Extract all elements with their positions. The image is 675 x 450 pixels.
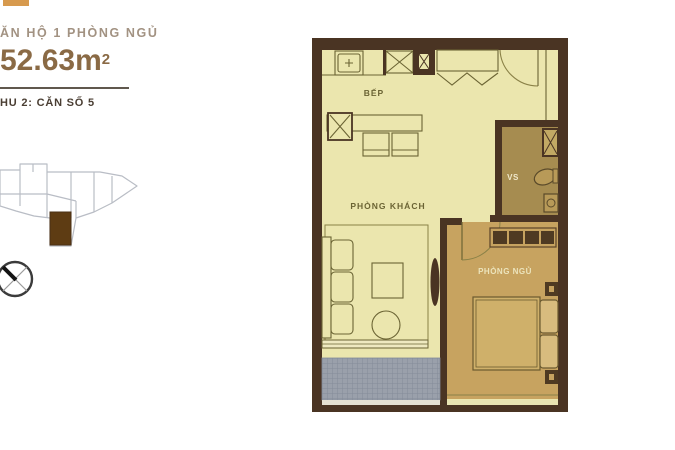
bed-pillow-2 [540, 335, 558, 368]
bar-stool-1 [363, 133, 389, 156]
area-sup: 2 [102, 51, 110, 68]
keyplan-thumbnail [0, 156, 142, 256]
sofa-cushion-2 [331, 272, 353, 302]
living-label: PHÒNG KHÁCH [350, 200, 425, 211]
divider-line [0, 87, 129, 89]
tv-unit [431, 258, 440, 306]
toilet-tank [553, 169, 558, 183]
wardrobe-door-2 [509, 231, 523, 244]
sofa-cushion-3 [331, 304, 353, 334]
bedroom-label: PHÒNG NGỦ [478, 267, 532, 276]
bedroom-window-strip [447, 400, 558, 405]
highlighted-unit [50, 212, 71, 245]
balcony-railing [322, 400, 440, 405]
nightstand-2-lamp [549, 374, 554, 380]
compass-icon [0, 258, 42, 304]
page: { "panel": { "title": "ĂN HỘ 1 PHÒNG NGỦ… [0, 0, 675, 450]
area-unit: m [75, 44, 102, 77]
bathroom-wall-bottom [490, 215, 558, 222]
wall-right [558, 38, 568, 412]
ottoman [372, 311, 400, 339]
bed-pillow-1 [540, 300, 558, 333]
kitchen-label: BẾP [364, 88, 384, 98]
wardrobe-door-3 [525, 231, 539, 244]
stove-side-wall-left [383, 50, 386, 75]
bath-sink [544, 194, 558, 212]
coffee-table [372, 263, 403, 298]
living-bedroom-wall [440, 218, 447, 412]
balcony-floor [322, 358, 440, 400]
bedroom-wall-stub [440, 218, 462, 225]
wardrobe-door-1 [493, 231, 507, 244]
sofa-back [322, 237, 331, 338]
bar-stool-2 [392, 133, 418, 156]
wardrobe-door-4 [541, 231, 554, 244]
bathroom-wall-left [495, 120, 502, 222]
floorplan: BẾP VS [312, 38, 568, 412]
bed [473, 297, 540, 370]
bathroom-wall-top [495, 120, 568, 127]
stove-side-wall-right [413, 50, 415, 75]
sofa-cushion-1 [331, 240, 353, 270]
wall-top [312, 38, 568, 50]
wall-left [312, 38, 322, 412]
apartment-subtitle: HU 2: CĂN SỐ 5 [0, 97, 95, 109]
area-value: 52.63 [0, 44, 75, 77]
entry-closet [437, 50, 498, 71]
bathroom-label: VS [507, 173, 519, 182]
apartment-area: 52.63m2 [0, 44, 110, 78]
nightstand-1-lamp [549, 286, 554, 292]
apartment-title: ĂN HỘ 1 PHÒNG NGỦ [0, 26, 158, 40]
brand-logo [3, 0, 29, 6]
